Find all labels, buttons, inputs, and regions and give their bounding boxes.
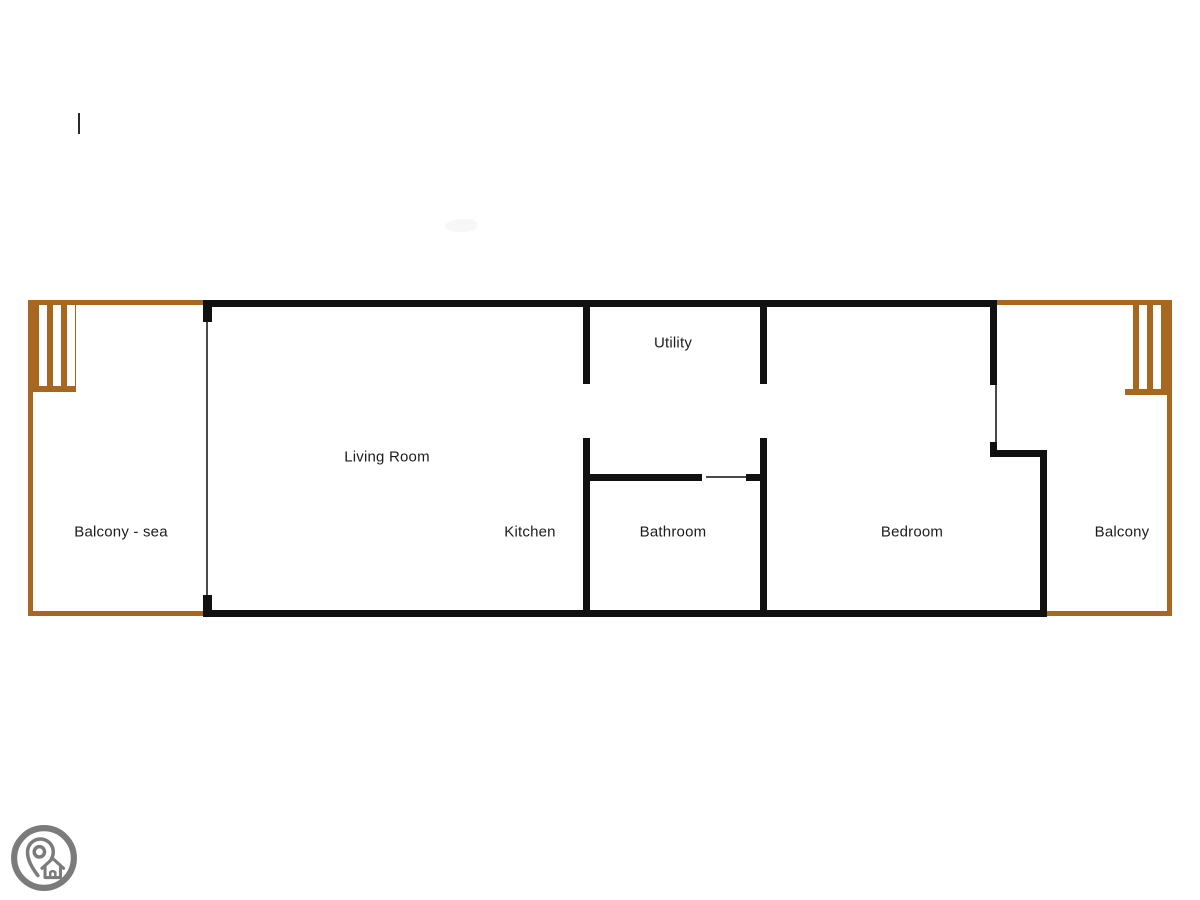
wall-livingroom-door-cap-bottom	[203, 595, 212, 610]
wall-bathroom-right	[760, 438, 767, 610]
wall-bathroom-top	[590, 474, 702, 481]
balcony-border-bottom	[1047, 611, 1172, 616]
balcony-railing	[1125, 305, 1167, 395]
floor-plan-page: Balcony - sea Living Room Kitchen Utilit…	[0, 0, 1200, 900]
wall-top	[203, 300, 997, 307]
location-pin-house-logo-icon	[9, 823, 79, 893]
room-label-balcony: Balcony	[1095, 525, 1150, 540]
balcony-sea-railing	[33, 305, 76, 392]
room-label-living-room: Living Room	[344, 450, 430, 465]
room-label-balcony-sea: Balcony - sea	[74, 525, 167, 540]
door-line-balcony-sea	[206, 322, 208, 595]
room-label-bedroom: Bedroom	[881, 525, 943, 540]
door-line-bedroom-balcony	[995, 385, 997, 442]
wall-utility-left	[583, 307, 590, 384]
wall-bathroom-door-jamb	[746, 474, 760, 481]
room-label-bathroom: Bathroom	[640, 525, 707, 540]
room-label-utility: Utility	[654, 336, 692, 351]
balcony-sea-border-bottom	[28, 611, 203, 616]
wall-bottom	[203, 610, 1047, 617]
stray-cursor-mark	[78, 113, 80, 134]
door-line-bathroom	[706, 476, 746, 478]
wall-bedroom-right-upper	[990, 307, 997, 385]
wall-utility-right	[760, 307, 767, 384]
wall-bedroom-step-vertical	[1040, 457, 1047, 610]
room-label-kitchen: Kitchen	[504, 525, 555, 540]
balcony-border-right	[1167, 300, 1172, 616]
wall-bathroom-left	[583, 438, 590, 610]
faint-smudge	[445, 219, 477, 232]
wall-bedroom-step-horizontal	[990, 450, 1047, 457]
wall-livingroom-door-cap-top	[203, 307, 212, 322]
